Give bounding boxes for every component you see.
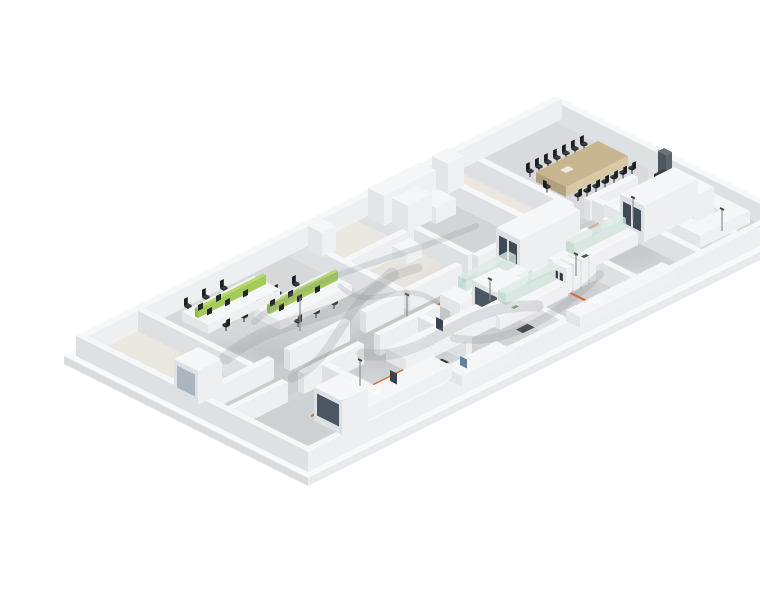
fume-hood [174, 347, 222, 405]
storage-cabinet [432, 148, 464, 194]
floorplan-figure [40, 16, 760, 586]
isometric-floorplan [40, 16, 760, 586]
equipment-box [308, 219, 336, 257]
